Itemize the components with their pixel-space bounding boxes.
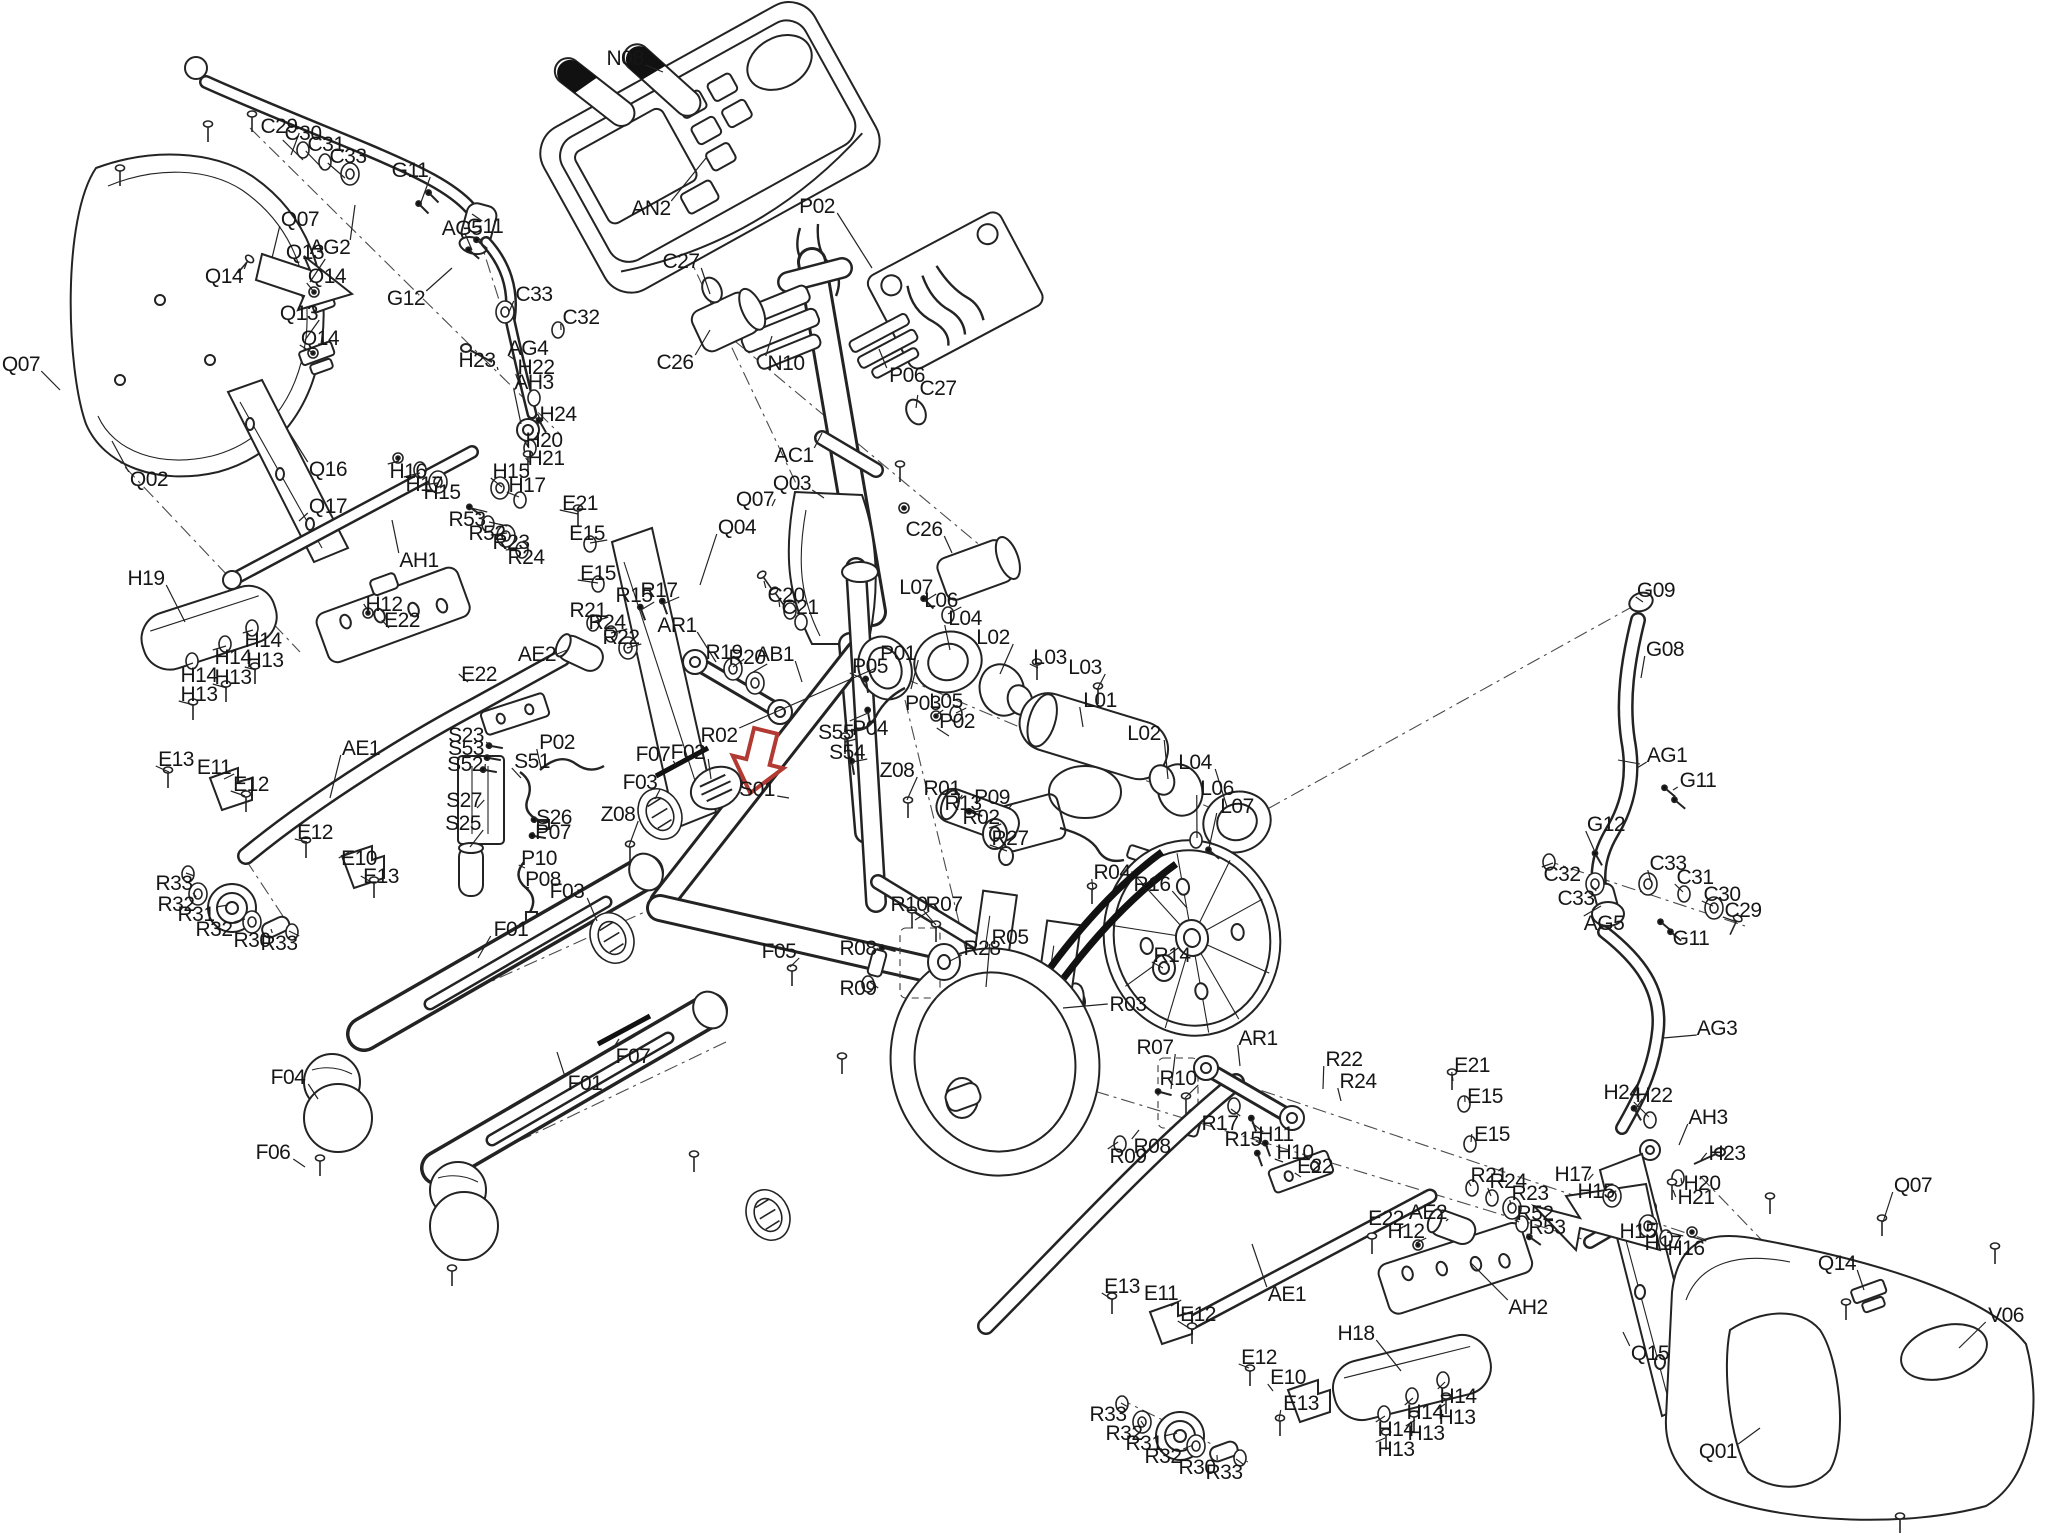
part-label-e21: E21 (562, 492, 598, 515)
part-label-s25: S25 (445, 812, 481, 835)
part-label-p10: P10 (521, 847, 557, 870)
part-label-p04: P04 (852, 717, 889, 740)
leader-h23 (497, 367, 498, 370)
part-label-e15: E15 (569, 522, 605, 545)
nut-icon (899, 503, 909, 513)
part-label-c32: C32 (562, 306, 599, 329)
part-label-c27: C27 (662, 250, 699, 273)
part-label-s27: S27 (446, 789, 482, 812)
part-label-l03: L03 (1068, 656, 1102, 679)
part-label-r04: R04 (1093, 861, 1131, 884)
screw-icon (1991, 1243, 2000, 1264)
leader-c20 (764, 581, 766, 588)
pin-icon (415, 200, 430, 215)
part-label-h21: H21 (527, 447, 564, 470)
pin-icon (1671, 796, 1687, 811)
screw-icon (1276, 1415, 1285, 1436)
screw-icon (838, 1053, 847, 1074)
part-label-f05: F05 (762, 940, 797, 963)
part-label-ag5: AG5 (442, 217, 483, 240)
part-label-f04: F04 (271, 1066, 307, 1089)
part-label-r24: R24 (507, 546, 545, 569)
part-label-l02: L02 (1127, 722, 1161, 745)
part-label-r53: R53 (1528, 1216, 1565, 1239)
part-label-q15: Q15 (1631, 1342, 1669, 1365)
part-label-c33: C33 (329, 145, 366, 168)
part-label-g08: G08 (1646, 638, 1684, 661)
part-label-h23: H23 (1708, 1142, 1745, 1165)
leader-h20 (1681, 1178, 1682, 1183)
part-label-g12: G12 (1587, 813, 1625, 836)
right-shroud (1600, 1154, 2033, 1520)
part-label-h15: H15 (1577, 1180, 1614, 1203)
part-label-r09: R09 (1109, 1145, 1146, 1168)
part-label-q14: Q14 (205, 265, 244, 288)
leader-q15 (1623, 1332, 1630, 1346)
ring-icon (746, 672, 764, 694)
part-label-ah3: AH3 (514, 371, 553, 394)
part-label-ae1: AE1 (1268, 1283, 1306, 1306)
leader-ag3 (1663, 1035, 1697, 1038)
part-label-c21: C21 (781, 596, 818, 619)
part-label-f03: F03 (550, 880, 585, 903)
part-label-r07: R07 (925, 893, 962, 916)
part-label-r10: R10 (890, 893, 927, 916)
part-label-f02: F02 (671, 741, 706, 764)
part-label-q14: Q14 (1818, 1252, 1857, 1275)
part-label-e15: E15 (1467, 1085, 1503, 1108)
part-label-e22: E22 (461, 663, 497, 686)
part-label-p01: P01 (880, 642, 916, 665)
leader-g11 (1673, 787, 1678, 790)
part-label-h14: H14 (1439, 1385, 1477, 1408)
part-label-h21: H21 (1677, 1186, 1714, 1209)
part-label-r27: R27 (991, 827, 1028, 850)
part-label-e22: E22 (384, 609, 420, 632)
leader-h21 (1673, 1190, 1676, 1197)
part-label-r17: R17 (640, 579, 677, 602)
leader-ab1 (795, 661, 802, 682)
part-label-c27: C27 (919, 377, 956, 400)
part-label-q03: Q03 (773, 472, 811, 495)
part-label-h13: H13 (214, 666, 251, 689)
part-label-r33: R33 (155, 872, 192, 895)
part-label-h12: H12 (1387, 1220, 1424, 1243)
part-label-f01: F01 (494, 918, 529, 941)
part-label-r32: R32 (195, 918, 232, 941)
screw-icon (204, 121, 213, 142)
part-label-h18: H18 (1337, 1322, 1374, 1345)
leader-q07 (1883, 1192, 1893, 1222)
part-label-e15: E15 (1474, 1123, 1510, 1146)
ring-icon (496, 301, 514, 323)
part-label-c26: C26 (905, 518, 942, 541)
part-label-r14: R14 (1153, 944, 1191, 967)
part-label-r07: R07 (1136, 1036, 1173, 1059)
part-label-l07: L07 (1220, 795, 1254, 818)
part-label-q01: Q01 (1699, 1440, 1737, 1463)
screw-icon (448, 1265, 457, 1286)
screw-icon (904, 797, 913, 818)
part-label-g11: G11 (1673, 927, 1710, 950)
part-label-p02: P02 (939, 710, 975, 733)
leader-e15 (1471, 1134, 1472, 1142)
part-label-ag3: AG3 (1697, 1017, 1738, 1040)
part-label-c32: C32 (1543, 863, 1580, 886)
console-assembly (530, 0, 891, 303)
part-label-h13: H13 (180, 683, 217, 706)
part-label-r33: R33 (260, 932, 297, 955)
part-label-f01: F01 (568, 1072, 603, 1095)
part-label-e12: E12 (1180, 1303, 1216, 1326)
part-label-ah2: AH2 (1508, 1296, 1547, 1319)
part-label-v06: V06 (1988, 1304, 2024, 1327)
screw-icon (1878, 1215, 1887, 1236)
part-label-r15: R15 (1224, 1128, 1261, 1151)
screw-icon (896, 461, 905, 482)
part-label-q17: Q17 (309, 495, 347, 518)
leader-ah1 (392, 520, 399, 553)
part-label-f03: F03 (623, 771, 658, 794)
leader-q04 (700, 534, 717, 585)
screw-icon (690, 1151, 699, 1172)
part-label-e10: E10 (1270, 1366, 1306, 1389)
part-label-q14: Q14 (301, 327, 340, 350)
part-label-c29: C29 (1724, 899, 1761, 922)
part-label-z08: Z08 (880, 759, 915, 782)
leader-s01 (777, 796, 789, 798)
part-label-q07: Q07 (2, 353, 40, 376)
part-label-ae2: AE2 (518, 643, 556, 666)
part-label-e21: E21 (1454, 1054, 1490, 1077)
part-label-c33: C33 (515, 283, 552, 306)
part-label-h13: H13 (246, 649, 283, 672)
part-label-e11: E11 (197, 756, 231, 779)
part-label-r09: R09 (839, 977, 876, 1000)
part-label-n10: N10 (767, 352, 804, 375)
part-label-r32: R32 (1144, 1445, 1181, 1468)
part-label-h22: H22 (1635, 1084, 1672, 1107)
leader-q07 (41, 371, 60, 390)
part-label-f06: F06 (256, 1141, 291, 1164)
part-label-ag5: AG5 (1584, 912, 1625, 935)
leader-c26 (944, 536, 952, 553)
part-label-h15: H15 (423, 481, 460, 504)
part-label-e15: E15 (580, 562, 616, 585)
part-label-g11: G11 (1680, 769, 1717, 792)
part-label-ah1: AH1 (399, 549, 438, 572)
part-label-ae1: AE1 (342, 737, 380, 760)
part-label-q16: Q16 (309, 458, 347, 481)
part-label-z08: Z08 (601, 803, 636, 826)
part-label-e12: E12 (297, 821, 333, 844)
leader-f01 (557, 1052, 565, 1076)
screw-icon (1766, 1193, 1775, 1214)
pin-icon (1254, 1150, 1265, 1167)
part-label-l01: L01 (1083, 689, 1117, 712)
part-label-p09: P09 (974, 786, 1010, 809)
part-label-s51: S51 (514, 750, 550, 773)
part-label-r08: R08 (839, 937, 876, 960)
part-label-h19: H19 (127, 567, 164, 590)
part-label-ag1: AG1 (1647, 744, 1688, 767)
diagram-canvas: Q07C29C30C31C33G11Q07AG2Q13Q14Q14G11AG5G… (0, 0, 2048, 1533)
nut-icon (1687, 1227, 1697, 1237)
part-label-f07: F07 (616, 1045, 651, 1068)
part-label-ac1: AC1 (774, 444, 813, 467)
part-label-e13: E13 (363, 865, 399, 888)
part-label-r02: R02 (700, 724, 737, 747)
part-label-r22: R22 (1325, 1048, 1362, 1071)
part-label-r22: R22 (602, 626, 639, 649)
leader-ag2 (350, 205, 355, 240)
screw-icon (788, 965, 797, 986)
washer-icon (1190, 832, 1202, 848)
part-label-s01: S01 (739, 778, 775, 801)
part-label-e12: E12 (233, 773, 269, 796)
part-label-q14: Q14 (308, 265, 347, 288)
part-label-e13: E13 (1283, 1392, 1319, 1415)
part-label-l03: L03 (1033, 646, 1067, 669)
screw-icon (248, 111, 257, 132)
part-label-r24: R24 (1339, 1070, 1377, 1093)
part-label-h17: H17 (508, 474, 545, 497)
part-label-e13: E13 (158, 748, 194, 771)
screw-icon (1896, 1513, 1905, 1533)
part-label-q02: Q02 (130, 468, 168, 491)
screw-icon (1368, 1233, 1377, 1254)
part-label-r05: R05 (991, 926, 1028, 949)
part-label-c26: C26 (656, 351, 693, 374)
part-label-p02: P02 (799, 195, 835, 218)
part-label-q07: Q07 (736, 488, 774, 511)
leader-ah3 (1679, 1124, 1688, 1145)
part-label-h16: H16 (1667, 1237, 1704, 1260)
part-label-h13: H13 (1377, 1438, 1414, 1461)
part-label-e11: E11 (1144, 1282, 1178, 1305)
screw-icon (316, 1155, 325, 1176)
part-label-an2: AN2 (631, 197, 670, 220)
part-label-r02: R02 (962, 806, 999, 829)
part-label-q13: Q13 (286, 241, 324, 264)
part-label-h24: H24 (539, 403, 577, 426)
part-label-ab1: AB1 (756, 643, 794, 666)
part-label-g09: G09 (1637, 579, 1675, 602)
part-label-g12: G12 (387, 287, 425, 310)
ring-icon (1639, 873, 1657, 895)
part-label-p07: P07 (535, 821, 571, 844)
part-label-l02: L02 (976, 626, 1010, 649)
part-label-ah3: AH3 (1688, 1106, 1727, 1129)
part-label-e22: E22 (1297, 1155, 1333, 1178)
part-label-c33: C33 (1557, 887, 1594, 910)
part-label-q07: Q07 (1894, 1174, 1932, 1197)
part-label-h23: H23 (458, 349, 495, 372)
part-label-r03: R03 (1109, 993, 1146, 1016)
part-label-n08: N08 (606, 47, 643, 70)
part-label-r10: R10 (1159, 1067, 1196, 1090)
leader-g12 (426, 268, 452, 291)
part-label-e13: E13 (1104, 1275, 1140, 1298)
part-label-q13: Q13 (280, 302, 318, 325)
leader-r22 (1323, 1066, 1324, 1089)
part-label-g11: G11 (392, 159, 429, 182)
part-label-ar1: AR1 (657, 614, 696, 637)
leader-f06 (293, 1159, 305, 1167)
part-label-r16: R16 (1133, 873, 1170, 896)
part-label-f07: F07 (636, 743, 671, 766)
part-label-s54: S54 (829, 741, 866, 764)
part-label-q07: Q07 (281, 208, 319, 231)
part-label-q04: Q04 (718, 516, 757, 539)
part-label-ar1: AR1 (1238, 1027, 1277, 1050)
part-label-r33: R33 (1205, 1461, 1242, 1484)
part-label-l04: L04 (1178, 751, 1212, 774)
exploded-diagram-page: Q07C29C30C31C33G11Q07AG2Q13Q14Q14G11AG5G… (0, 0, 2048, 1533)
leader-g08 (1641, 656, 1645, 678)
part-label-s52: S52 (447, 753, 483, 776)
